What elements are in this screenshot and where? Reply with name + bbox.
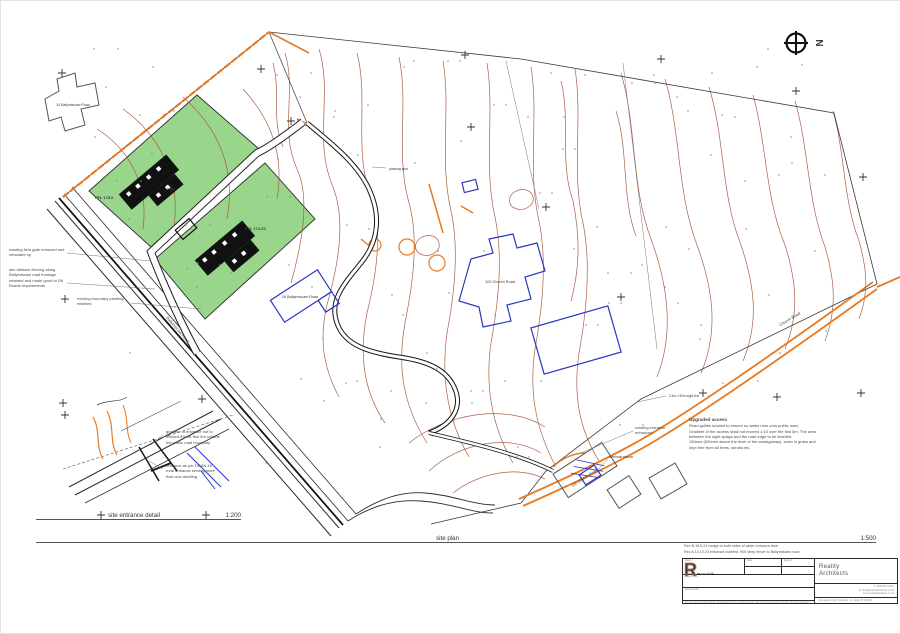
firm-address: 4 Deramore Park, Holywood, Co. Down BT18…	[815, 597, 897, 603]
label-house109: 109 Church Road	[485, 280, 515, 284]
note-entrance-gradient: gradient of entrance not to exceed 8% fo…	[166, 429, 222, 445]
note-ash-dieback: ash dieback fencing along Ballymiscaw ro…	[9, 267, 67, 289]
site-plan-titleline: site plan 1:500	[36, 534, 876, 543]
upgraded-access-line3: 150mm (600mm above the level of the carr…	[689, 439, 816, 449]
label-overhead-electric: overhead electric	[609, 455, 634, 459]
firm-name: Reality Architects	[819, 564, 848, 578]
dwg-rev-field: dwg no B	[782, 559, 814, 574]
upgraded-access-line1: Road gullies located to ensure no water …	[689, 423, 799, 428]
drawing-title-label: drawing title	[685, 589, 812, 592]
note-boundary-planting: existing boundary planting retained	[77, 296, 129, 307]
label-road-church: Church Road	[778, 311, 801, 327]
entrance-detail-title: site entrance detail	[108, 512, 160, 519]
logo-letter: R	[684, 560, 697, 579]
upgraded-access-title: Upgraded access	[689, 417, 727, 422]
entrance-detail-drawing	[63, 397, 233, 503]
revision-notes: Rev B 19.6.24 hedge to both sides of wid…	[684, 544, 894, 555]
label-passing-spot: passing spot	[389, 167, 408, 171]
firm-name-line1: Reality	[819, 564, 848, 571]
note-field-gate: existing field gate removed and relocate…	[9, 247, 67, 258]
label-house24: 24 Ballymiscaw Road	[56, 103, 90, 107]
title-block-fields: client Nagy Darwish date 1:500 @ A1 dwg …	[683, 559, 814, 603]
note-entrance-enhanced: existing entrance enhanced	[635, 425, 677, 436]
upgraded-access-line2: Gradient of the access shall not exceed …	[689, 429, 816, 439]
label-ffl2: FFL 174.25	[245, 226, 266, 231]
site-plan-title: site plan	[436, 535, 459, 542]
project-field: project 109 Church Road, Holywood	[683, 575, 814, 588]
project-label: project	[685, 576, 812, 579]
site-plan-scale: 1:500	[861, 535, 876, 542]
label-house28: 28 Ballymiscaw Road	[282, 295, 318, 299]
title-block: client Nagy Darwish date 1:500 @ A1 dwg …	[682, 558, 898, 604]
date-label: date	[747, 560, 779, 563]
reality-architects-logo-icon: R	[683, 559, 700, 579]
disclaimer-text: Do not scale from this drawing. All dime…	[683, 601, 814, 603]
neighbour-outlines	[45, 73, 687, 508]
north-label: N	[813, 39, 824, 46]
driveway	[307, 123, 553, 471]
firm-name-line2: Architects	[819, 571, 848, 578]
firm-website: www.realityarchitects.co.uk	[818, 592, 894, 596]
title-block-firm: R Reality Architects T. 028 9042 4470 E.…	[814, 559, 897, 603]
entrance-detail-scale: 1:200	[226, 512, 241, 519]
revision-a: Rev A 14.10.23 entrance clarified. 900 d…	[684, 550, 894, 556]
date-scale-field: date 1:500 @ A1	[745, 559, 782, 574]
note-upgraded-access: Upgraded access Road gullies located to …	[689, 417, 821, 450]
drawing-title-field: drawing title site plan	[683, 588, 814, 601]
note-entrance-dcan: entrance as per DCAN 15 rural entrance s…	[166, 463, 218, 479]
entrance-detail-titleline: site entrance detail 1:200	[36, 511, 241, 520]
drawing-sheet: N 24 Ballymiscaw Road FFL 175.0 FFL 174.…	[0, 0, 900, 634]
label-ffl1: FFL 175.0	[95, 195, 114, 200]
firm-contact: T. 028 9042 4470 E. info@realityarchitec…	[815, 583, 897, 597]
label-sight-line: 2.4m x 90m sight line	[669, 394, 699, 398]
north-arrow-icon: N	[784, 31, 824, 55]
dwg-label: dwg no	[784, 560, 812, 563]
